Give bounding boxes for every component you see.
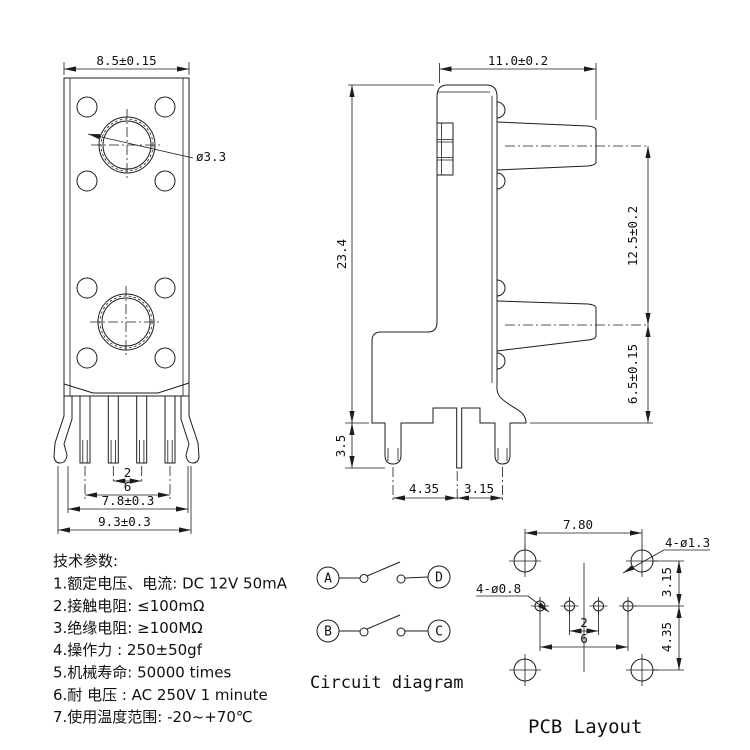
switch-lever-top: [367, 562, 400, 576]
front-width-dim-text: 8.5±0.15: [96, 53, 156, 68]
circuit-diagram: A D B C Circuit diagram: [310, 562, 464, 693]
side-pin-tip-lines: [388, 448, 507, 461]
front-hole: [155, 278, 175, 298]
terminal-c-label: C: [435, 625, 443, 640]
front-body-chamfer: [64, 383, 189, 393]
front-pins: [80, 396, 175, 463]
terminal-a-label: A: [324, 572, 332, 587]
side-face-bumps: [497, 102, 505, 369]
front-leg-span-text: 7.8±0.3: [102, 493, 155, 508]
tech-spec-line-3: 3.绝缘电阻: ≥100MΩ: [53, 619, 203, 637]
front-pin-span-text: 6: [124, 479, 132, 494]
tech-spec-line-2: 2.接触电阻: ≤100mΩ: [53, 597, 204, 615]
switch-lever-bottom: [367, 615, 400, 629]
side-pin-length-dim-text: 3.5: [333, 435, 348, 458]
front-hole: [155, 97, 175, 117]
side-depth-dimension: 11.0±0.2: [440, 53, 597, 120]
pcb-layout: 7.80 4-ø1.3 4-ø0.8 2 6 3.15 4: [476, 517, 710, 738]
side-depth-dim-text: 11.0±0.2: [488, 53, 548, 68]
technical-drawing-canvas: ø3.3 8.5±0.15 2 6: [0, 0, 750, 750]
side-terminal-stack: [437, 123, 453, 175]
front-bottom-dimensions: 2 6 7.8±0.3 9.3±0.3: [58, 465, 191, 534]
pcb-caption: PCB Layout: [528, 716, 642, 738]
tech-spec-line-4: 4.操作力 : 250±50gf: [53, 641, 203, 659]
front-hole: [77, 348, 97, 368]
side-height-dim-text: 23.4: [334, 239, 349, 269]
pcb-corner-hole-label-text: 4-ø1.3: [665, 535, 710, 550]
front-outer-span-text: 9.3±0.3: [98, 514, 151, 529]
front-lower-button: [90, 286, 162, 358]
pcb-pin-hole-label-text: 4-ø0.8: [476, 581, 521, 596]
tech-spec-line-6: 6.耐 电压 : AC 250V 1 minute: [53, 686, 268, 704]
pcb-pin-pitch-dimension: 2 6: [540, 612, 628, 651]
tech-specs-title: 技术参数:: [53, 552, 118, 570]
contact-point: [397, 575, 405, 583]
side-height-dimension: 23.4 3.5: [333, 85, 434, 468]
side-lower-button: [497, 301, 596, 351]
front-width-dimension: 8.5±0.15: [64, 53, 189, 75]
front-left-leg: [54, 396, 72, 463]
front-hole: [155, 171, 175, 191]
pcb-pitch-dimension: 7.80: [525, 517, 642, 549]
contact-point: [397, 628, 405, 636]
pcb-row-bottom-dim-text: 4.35: [659, 622, 674, 652]
tech-spec-line-7: 7.使用温度范围: -20~+70℃: [53, 708, 253, 726]
front-hole: [77, 171, 97, 191]
contact-point: [360, 628, 368, 636]
front-pin-pitch-text: 2: [124, 465, 132, 480]
hole-dia-leader: [88, 134, 193, 158]
tech-spec-line-5: 5.机械寿命: 50000 times: [53, 664, 232, 682]
side-pin-spacing-dimensions: 4.35 3.15: [393, 467, 503, 502]
side-button-dimensions: 12.5±0.2 6.5±0.15: [530, 146, 653, 423]
front-hole: [155, 348, 175, 368]
side-view: 11.0±0.2 23.4 3.5 12.5±0.2 6.5±0.15 4.35: [333, 53, 653, 502]
pcb-pin-pitch-text: 2: [580, 615, 588, 630]
front-hole: [77, 97, 97, 117]
pcb-pin-span-text: 6: [580, 631, 588, 646]
side-spacing-right-text: 3.15: [464, 481, 494, 496]
pcb-pin-hole-label: 4-ø0.8: [476, 581, 549, 612]
terminal-d-label: D: [435, 571, 443, 586]
terminal-b-label: B: [324, 625, 332, 640]
side-body-outline: [372, 85, 526, 468]
front-upper-button: [91, 109, 163, 181]
side-spacing-left-text: 4.35: [409, 481, 439, 496]
pcb-row-top-dim-text: 3.15: [659, 567, 674, 597]
tech-specs: 技术参数: 1.额定电压、电流: DC 12V 50mA 2.接触电阻: ≤10…: [53, 552, 288, 726]
tech-spec-line-1: 1.额定电压、电流: DC 12V 50mA: [53, 575, 288, 593]
front-view: ø3.3 8.5±0.15 2 6: [54, 53, 226, 534]
pcb-pitch-dim-text: 7.80: [563, 517, 593, 532]
front-right-leg: [181, 396, 199, 463]
technical-drawing-page: ø3.3 8.5±0.15 2 6: [0, 0, 750, 750]
side-button-offset-dim-text: 6.5±0.15: [625, 344, 640, 404]
side-button-pitch-dim-text: 12.5±0.2: [625, 206, 640, 266]
circuit-caption: Circuit diagram: [310, 673, 464, 693]
front-hole: [77, 278, 97, 298]
hole-dia-text: ø3.3: [196, 149, 226, 164]
contact-point: [360, 575, 368, 583]
pcb-row-dimensions: 3.15 4.35: [635, 561, 684, 670]
